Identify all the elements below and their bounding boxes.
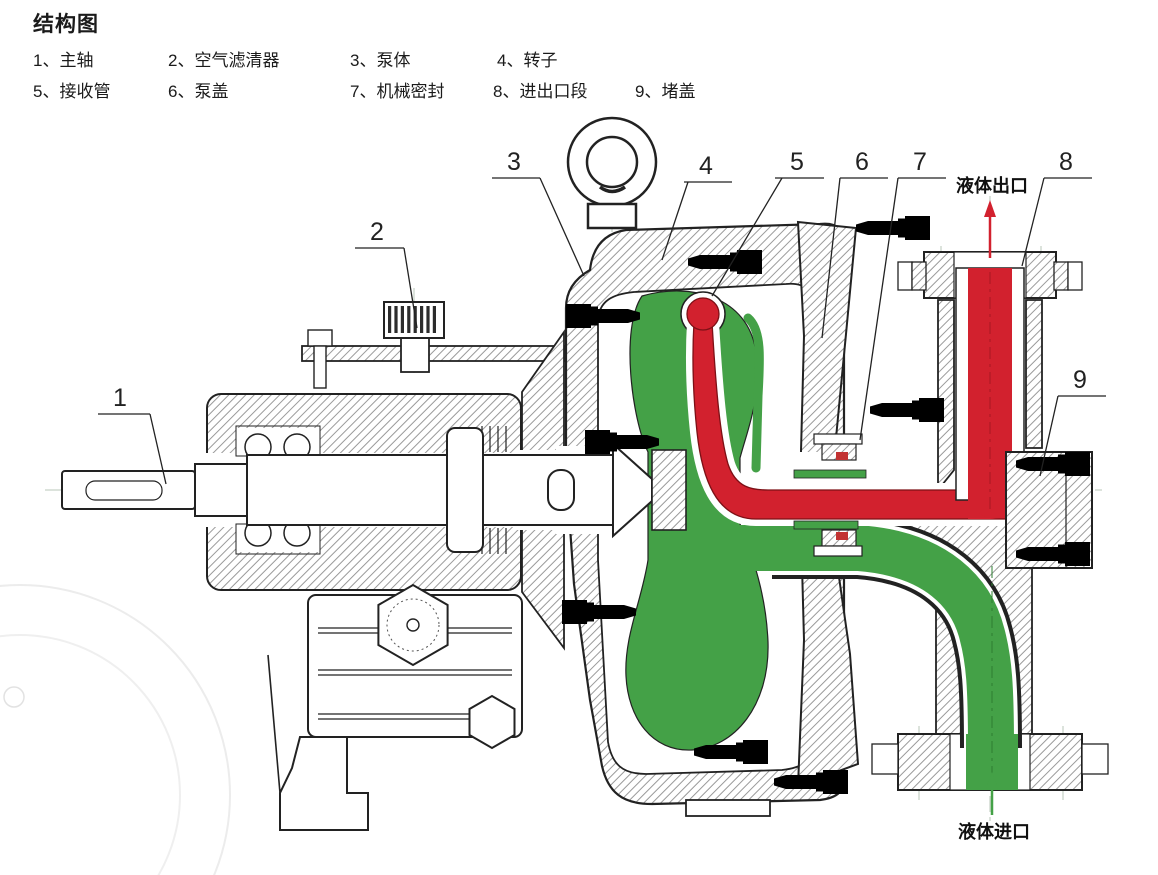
watermark-arcs <box>0 585 230 875</box>
callout-1: 1 <box>98 384 166 484</box>
pump-cross-section-drawing: 1 2 3 4 5 6 7 8 9 液体出口 <box>0 0 1158 875</box>
svg-text:2: 2 <box>370 218 384 246</box>
outlet-label: 液体出口 <box>956 175 1028 196</box>
structure-diagram-page: 结构图 1、主轴 2、空气滤清器 3、泵体 4、转子 5、接收管 6、泵盖 7、… <box>0 0 1158 875</box>
inlet-label: 液体进口 <box>958 821 1030 842</box>
oil-chamber <box>308 585 522 748</box>
callout-8: 8 <box>1022 148 1092 266</box>
svg-text:3: 3 <box>507 148 521 176</box>
svg-text:4: 4 <box>699 152 713 180</box>
svg-text:9: 9 <box>1073 366 1087 394</box>
bolt-icon <box>856 216 930 240</box>
outlet-flow-arrow-icon <box>984 200 996 258</box>
svg-text:7: 7 <box>913 148 927 176</box>
rotor-hub <box>652 450 686 530</box>
svg-text:5: 5 <box>790 148 804 176</box>
svg-text:1: 1 <box>113 384 127 412</box>
bolt-icon <box>870 398 944 422</box>
lifting-eye-icon <box>568 118 656 228</box>
svg-text:6: 6 <box>855 148 869 176</box>
svg-text:8: 8 <box>1059 148 1073 176</box>
